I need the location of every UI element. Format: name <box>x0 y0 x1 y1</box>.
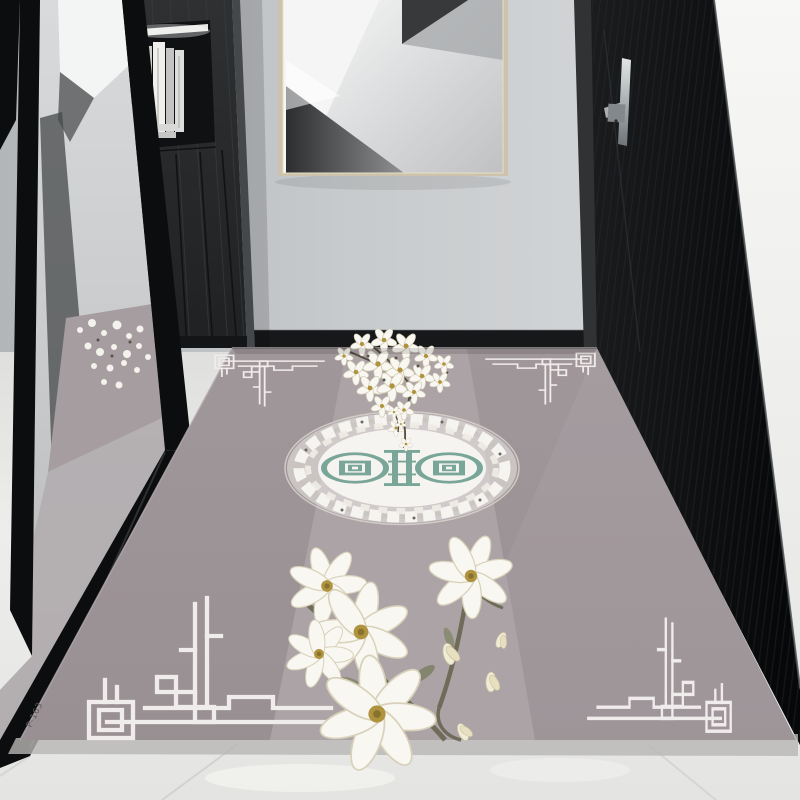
artwork-canvas <box>283 0 503 173</box>
abstract-artwork <box>275 0 511 190</box>
scene-canvas: P-163 <box>0 0 800 800</box>
rug-top-shadow <box>232 348 597 354</box>
marble-highlight <box>205 764 395 792</box>
entryway-scene: P-163 <box>0 0 800 800</box>
keyhole <box>614 119 617 122</box>
marble-highlight <box>490 758 630 782</box>
artwork-shadow <box>275 174 511 190</box>
